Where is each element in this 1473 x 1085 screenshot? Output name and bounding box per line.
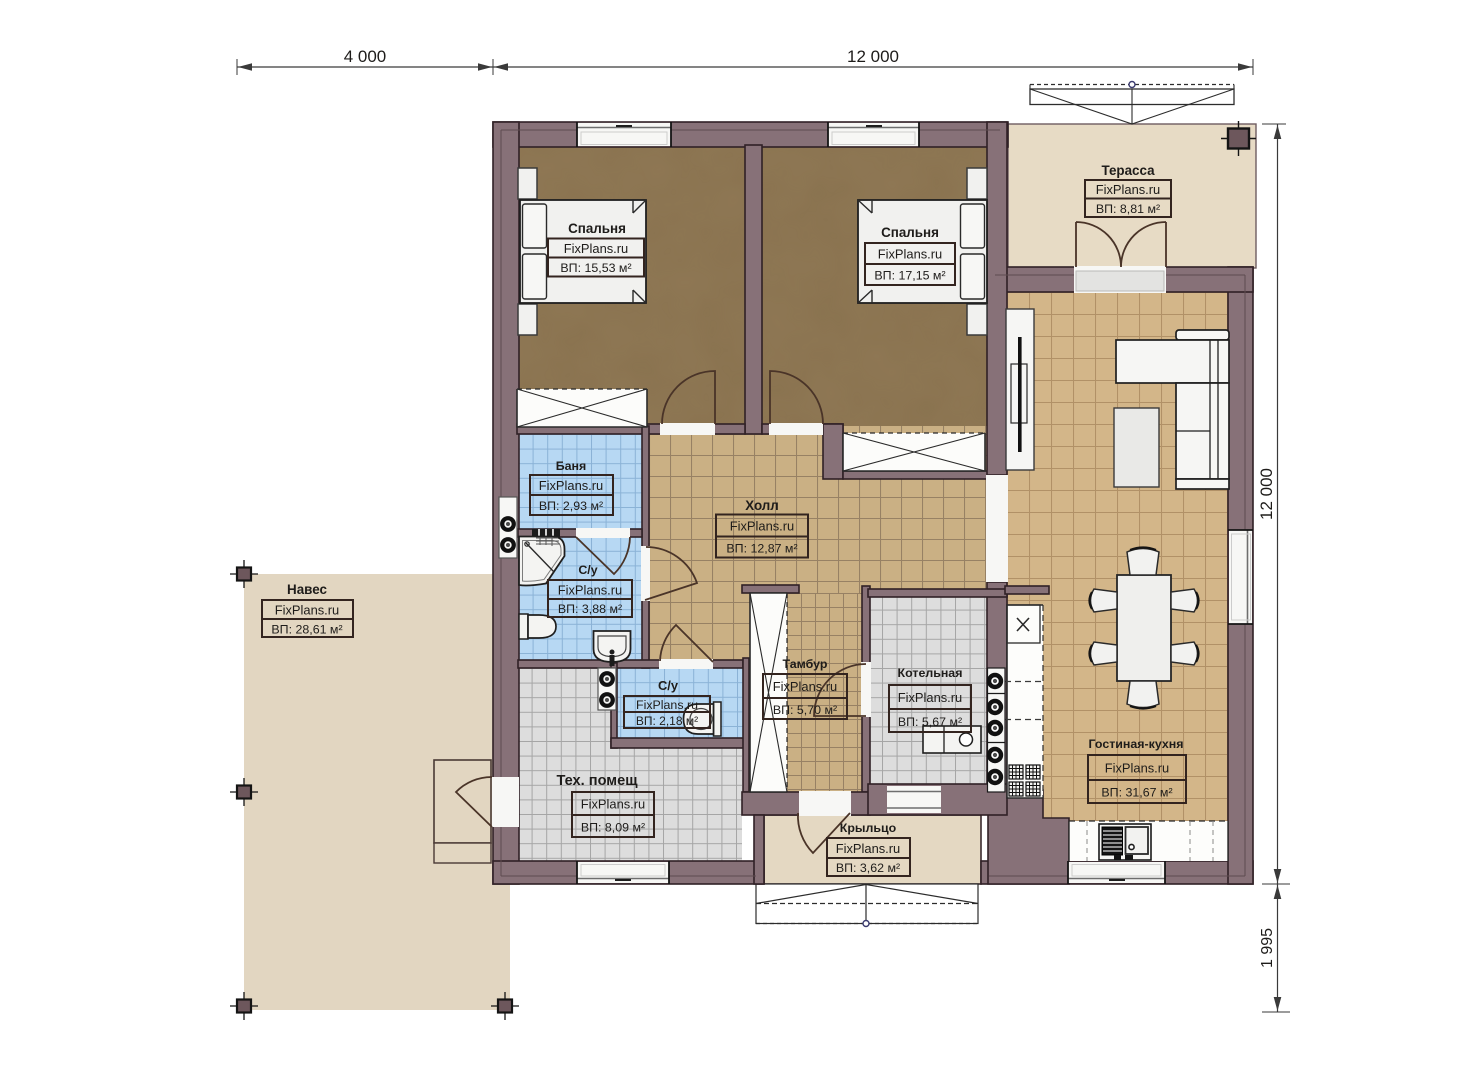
svg-text:ВП: 17,15 м²: ВП: 17,15 м²	[874, 269, 945, 283]
svg-text:ВП: 2,93 м²: ВП: 2,93 м²	[539, 499, 603, 513]
svg-text:ВП: 2,18 м²: ВП: 2,18 м²	[636, 714, 698, 728]
svg-text:ВП: 8,09 м²: ВП: 8,09 м²	[581, 821, 645, 835]
svg-text:FixPlans.ru: FixPlans.ru	[730, 519, 794, 534]
svg-text:FixPlans.ru: FixPlans.ru	[275, 603, 339, 618]
svg-text:12 000: 12 000	[847, 47, 899, 66]
svg-text:С/у: С/у	[658, 678, 679, 693]
svg-text:FixPlans.ru: FixPlans.ru	[1096, 182, 1160, 197]
svg-text:FixPlans.ru: FixPlans.ru	[539, 478, 603, 493]
svg-text:FixPlans.ru: FixPlans.ru	[1105, 761, 1169, 776]
svg-text:Холл: Холл	[745, 498, 779, 513]
svg-text:Тамбур: Тамбур	[783, 657, 828, 671]
svg-text:Навес: Навес	[287, 582, 327, 597]
svg-text:1 995: 1 995	[1259, 928, 1276, 968]
svg-text:Гостиная-кухня: Гостиная-кухня	[1089, 737, 1184, 751]
svg-text:Спальня: Спальня	[568, 221, 626, 236]
svg-text:4 000: 4 000	[344, 47, 387, 66]
svg-text:Крыльцо: Крыльцо	[840, 821, 897, 835]
svg-text:FixPlans.ru: FixPlans.ru	[558, 583, 622, 598]
svg-text:ВП: 5,67 м²: ВП: 5,67 м²	[898, 715, 962, 729]
svg-text:ВП: 31,67 м²: ВП: 31,67 м²	[1101, 786, 1172, 800]
svg-text:12 000: 12 000	[1257, 468, 1276, 520]
svg-text:FixPlans.ru: FixPlans.ru	[581, 797, 645, 812]
svg-text:FixPlans.ru: FixPlans.ru	[836, 841, 900, 856]
svg-text:Тех. помещ: Тех. помещ	[556, 773, 638, 789]
svg-text:Спальня: Спальня	[881, 225, 939, 240]
svg-text:С/у: С/у	[578, 563, 597, 577]
svg-text:Терасса: Терасса	[1101, 163, 1155, 178]
svg-text:Котельная: Котельная	[898, 666, 963, 680]
svg-text:ВП: 8,81 м²: ВП: 8,81 м²	[1096, 202, 1160, 216]
svg-text:FixPlans.ru: FixPlans.ru	[773, 679, 837, 694]
svg-text:ВП: 3,88 м²: ВП: 3,88 м²	[558, 602, 622, 616]
svg-text:Баня: Баня	[556, 459, 587, 473]
svg-text:FixPlans.ru: FixPlans.ru	[636, 698, 698, 712]
svg-text:FixPlans.ru: FixPlans.ru	[898, 690, 962, 705]
svg-text:ВП: 15,53 м²: ВП: 15,53 м²	[560, 261, 631, 275]
svg-text:ВП: 3,62 м²: ВП: 3,62 м²	[836, 861, 900, 875]
svg-text:FixPlans.ru: FixPlans.ru	[878, 247, 942, 262]
svg-text:ВП: 5,70 м²: ВП: 5,70 м²	[773, 703, 837, 717]
svg-text:ВП: 12,87 м²: ВП: 12,87 м²	[726, 542, 797, 556]
svg-text:FixPlans.ru: FixPlans.ru	[564, 241, 628, 256]
svg-text:ВП: 28,61 м²: ВП: 28,61 м²	[271, 623, 342, 637]
